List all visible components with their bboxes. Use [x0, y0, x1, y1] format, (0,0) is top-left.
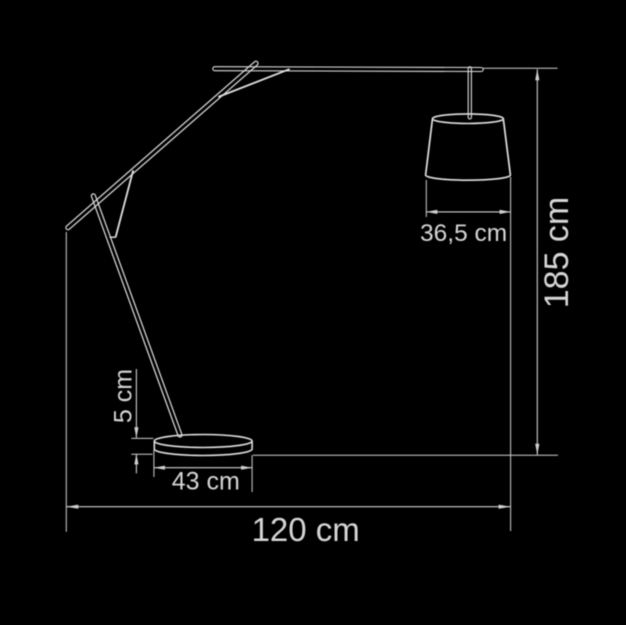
- svg-text:43 cm: 43 cm: [172, 468, 240, 496]
- svg-text:36,5 cm: 36,5 cm: [420, 220, 507, 247]
- svg-text:120 cm: 120 cm: [252, 511, 360, 548]
- svg-text:185 cm: 185 cm: [538, 197, 576, 309]
- svg-text:5 cm: 5 cm: [110, 369, 138, 423]
